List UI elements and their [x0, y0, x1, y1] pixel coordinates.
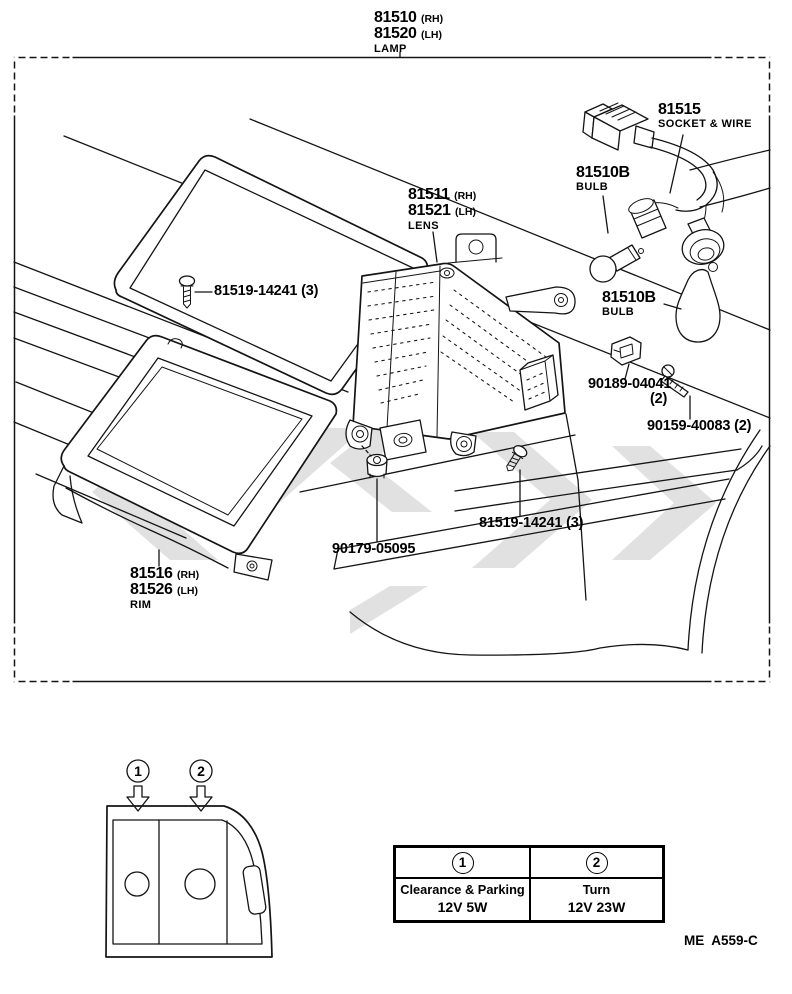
part-qty: (2) — [734, 418, 751, 434]
label-socket-wire: 81515 SOCKET & WIRE — [658, 102, 752, 131]
part-name: BULB — [576, 182, 630, 193]
down-arrow-icon — [127, 786, 149, 811]
label-lens: 81511 (RH) 81521 (LH) LENS — [408, 187, 476, 232]
side-code: (LH) — [177, 585, 198, 597]
label-clip: 90189-04041 (2) — [588, 377, 671, 407]
part-number: 81510B — [602, 289, 656, 306]
side-code: (LH) — [421, 29, 442, 41]
spec-table-body-row: Clearance & Parking 12V 5W Turn 12V 23W — [395, 878, 664, 922]
spec-cell-clearance: Clearance & Parking 12V 5W — [395, 878, 531, 922]
part-number: 81521 — [408, 202, 451, 219]
clip-icon — [611, 337, 641, 365]
lens-number-rh: 81511 (RH) — [408, 187, 476, 203]
side-code: (RH) — [454, 190, 476, 202]
part-name: SOCKET & WIRE — [658, 119, 752, 130]
part-qty: (2) — [650, 392, 671, 407]
rim-number-lh: 81526 (LH) — [130, 582, 199, 598]
inset-lamp-face: 1 2 — [106, 760, 272, 957]
part-number: 81511 — [408, 186, 450, 203]
bulb-rating: 12V 23W — [531, 897, 662, 920]
part-name: LENS — [408, 221, 476, 232]
inset-callout-1: 1 — [134, 763, 142, 779]
spec-header-1: 1 — [395, 847, 531, 879]
grommet-icon — [367, 455, 387, 479]
part-number: 90189-04041 — [588, 377, 671, 392]
part-number: 90159-40083 — [647, 418, 730, 434]
part-number: 81516 — [130, 565, 173, 582]
bulb-function: Turn — [531, 879, 662, 897]
part-number: 81519-14241 — [479, 515, 562, 531]
spec-header-2: 2 — [530, 847, 664, 879]
bulb-function: Clearance & Parking — [396, 879, 529, 897]
bulb-top — [590, 245, 644, 282]
inset-callout-2: 2 — [197, 763, 205, 779]
label-screw-lens-b: 81519-14241 (3) — [479, 516, 583, 531]
part-number: 81519-14241 — [214, 283, 297, 299]
bulb-side — [676, 263, 720, 343]
lamp-number-lh: 81520 (LH) — [374, 26, 443, 42]
part-name: BULB — [602, 307, 656, 318]
part-number: 81515 — [658, 101, 701, 118]
page-reference-code: ME A559-C — [684, 933, 758, 948]
part-name: RIM — [130, 600, 199, 611]
callout-2-badge: 2 — [586, 852, 608, 874]
part-name: LAMP — [374, 44, 443, 55]
callout-1-badge: 1 — [452, 852, 474, 874]
part-number: 81526 — [130, 581, 173, 598]
label-screw-lens-a: 81519-14241 (3) — [214, 284, 318, 299]
side-code: (RH) — [177, 569, 199, 581]
lens-number-lh: 81521 (LH) — [408, 203, 476, 219]
part-number: 81520 — [374, 25, 417, 42]
bulb-rating: 12V 5W — [396, 897, 529, 920]
part-qty: (3) — [566, 515, 583, 531]
label-screw-fender: 90159-40083 (2) — [647, 419, 751, 434]
lamp-number-rh: 81510 (RH) — [374, 10, 443, 26]
label-rim: 81516 (RH) 81526 (LH) RIM — [130, 566, 199, 611]
part-number: 81510B — [576, 164, 630, 181]
rim-number-rh: 81516 (RH) — [130, 566, 199, 582]
part-number: 90179-05095 — [332, 541, 415, 557]
down-arrow-icon — [190, 786, 212, 811]
part-qty: (3) — [301, 283, 318, 299]
spec-cell-turn: Turn 12V 23W — [530, 878, 664, 922]
label-bulb-side: 81510B BULB — [602, 290, 656, 319]
label-lamp: 81510 (RH) 81520 (LH) LAMP — [374, 10, 443, 55]
bulb-spec-table: 1 2 Clearance & Parking 12V 5W Turn 12V … — [393, 845, 665, 923]
label-bulb-top: 81510B BULB — [576, 165, 630, 194]
side-code: (RH) — [421, 13, 443, 25]
label-grommet: 90179-05095 — [332, 542, 415, 557]
side-code: (LH) — [455, 206, 476, 218]
spec-table-header-row: 1 2 — [395, 847, 664, 879]
part-number: 81510 — [374, 9, 417, 26]
